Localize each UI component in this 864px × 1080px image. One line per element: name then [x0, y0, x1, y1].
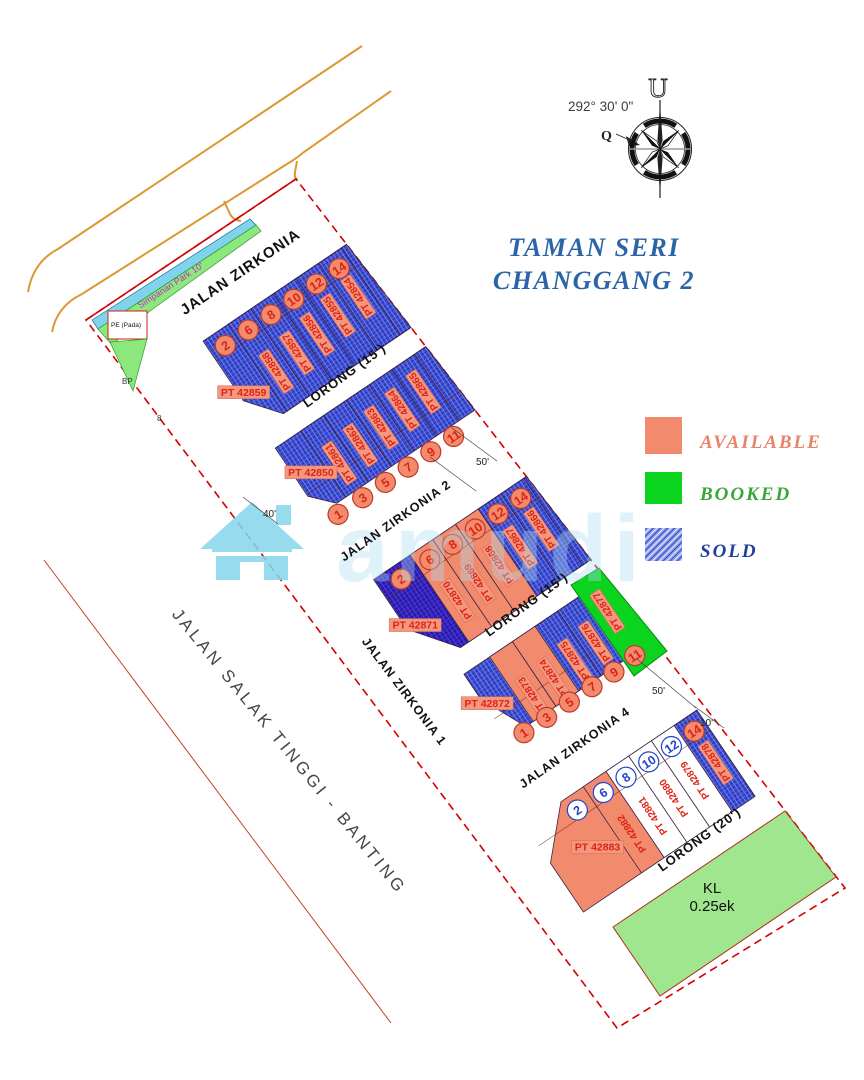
svg-text:PT 42883: PT 42883 — [575, 842, 621, 854]
svg-text:PT 42850: PT 42850 — [288, 467, 334, 479]
svg-text:AVAILABLE: AVAILABLE — [699, 432, 822, 453]
svg-text:PT 42872: PT 42872 — [464, 698, 510, 710]
svg-text:amudi: amudi — [336, 496, 646, 602]
svg-text:BP: BP — [122, 377, 133, 386]
svg-text:CHANGGANG 2: CHANGGANG 2 — [493, 266, 695, 295]
svg-text:292° 30' 0": 292° 30' 0" — [568, 99, 634, 114]
svg-text:U: U — [648, 73, 668, 103]
svg-text:40': 40' — [263, 509, 276, 520]
svg-text:PT 42859: PT 42859 — [221, 387, 267, 399]
svg-text:SOLD: SOLD — [700, 541, 758, 562]
svg-text:0.25ek: 0.25ek — [689, 898, 735, 915]
svg-text:50': 50' — [476, 457, 489, 468]
svg-text:10': 10' — [700, 718, 713, 729]
svg-text:PE (Pada): PE (Pada) — [111, 322, 141, 329]
svg-text:BOOKED: BOOKED — [699, 484, 791, 505]
svg-text:Q: Q — [601, 129, 612, 144]
svg-text:KL: KL — [703, 880, 721, 897]
svg-text:PT 42871: PT 42871 — [392, 620, 438, 632]
svg-text:50': 50' — [652, 686, 665, 697]
svg-text:8: 8 — [157, 414, 162, 423]
svg-text:TAMAN SERI: TAMAN SERI — [508, 233, 680, 262]
